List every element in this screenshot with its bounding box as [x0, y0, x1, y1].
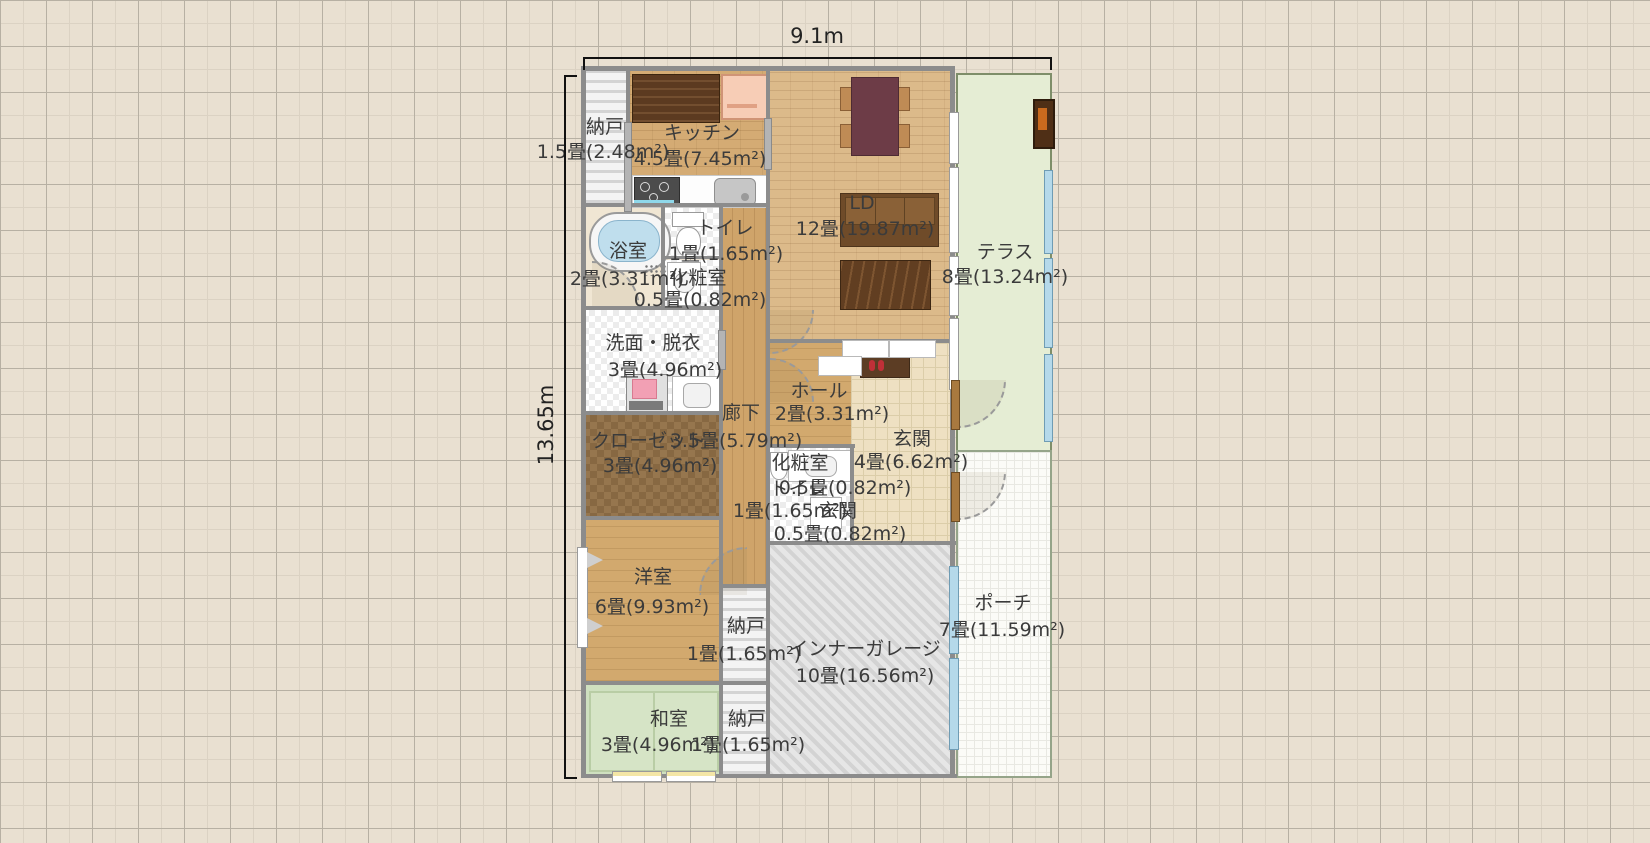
room-label-garage-name: インナーガレージ	[789, 639, 941, 661]
window-ld-terrace[interactable]	[949, 112, 959, 164]
room-label-garage-size: 10畳(16.56m²)	[796, 666, 935, 688]
room-label-washroom-name: 洗面・脱衣	[605, 333, 700, 355]
dimension-tick	[583, 57, 585, 70]
room-label-washroom-size: 3畳(4.96m²)	[608, 360, 722, 382]
dimension-line-width	[583, 57, 1052, 59]
casement-mark-icon	[587, 552, 603, 568]
room-label-terrace-name: テラス	[977, 242, 1034, 264]
washing-machine-lid	[632, 379, 657, 399]
room-label-ld-name: LD	[849, 193, 874, 215]
wall-outer-left	[581, 66, 586, 778]
washing-machine-panel	[629, 401, 663, 410]
room-label-toilet1-name: トイレ	[696, 218, 753, 240]
window-terrace-right[interactable]	[1044, 170, 1053, 254]
shoes-icon	[869, 360, 875, 371]
room-label-corridor-name: 廊下	[722, 403, 760, 425]
room-label-storage4-name: 納戸	[728, 709, 766, 731]
room-label-powder1-name: 化粧室	[669, 268, 726, 290]
dining-table[interactable]	[851, 77, 899, 156]
door-genkan-terrace[interactable]	[951, 380, 960, 430]
wall-washroom-closet	[581, 411, 723, 415]
kitchen-cabinet[interactable]	[632, 74, 720, 123]
tatami-mat	[589, 691, 655, 772]
room-label-toilet2-name: トイレ	[769, 479, 826, 501]
floorplan-canvas: 9.1m 13.65m 納戸 1.5畳(2.48m²) キッチン 4.5畳(7.…	[0, 0, 1650, 843]
refrigerator-handle	[727, 104, 757, 108]
refrigerator[interactable]	[721, 74, 768, 120]
room-label-kitchen-size: 4.5畳(7.45m²)	[634, 149, 766, 171]
sink-drain	[741, 193, 749, 201]
terrace-stove[interactable]	[1033, 99, 1055, 149]
room-label-toilet1-size: 1畳(1.65m²)	[669, 244, 783, 266]
room-label-hall-name: ホール	[790, 381, 847, 403]
door-storage1[interactable]	[624, 122, 632, 212]
window-terrace-right[interactable]	[1044, 354, 1053, 442]
room-label-genkan2-size: 0.5畳(0.82m²)	[774, 524, 906, 546]
burner	[640, 182, 650, 192]
wall-kitchen-bottom	[581, 203, 770, 207]
wall-center-spine	[766, 70, 770, 778]
dimension-height-label: 13.65m	[534, 385, 558, 466]
room-label-storage3-size: 1畳(1.65m²)	[687, 644, 801, 666]
window-japanese-bottom[interactable]	[612, 771, 662, 782]
room-label-storage3-name: 納戸	[727, 616, 765, 638]
entrance-step	[889, 340, 936, 358]
washstand-basin	[683, 383, 711, 408]
room-label-western-size: 6畳(9.93m²)	[595, 597, 709, 619]
terrace-stove-fire	[1038, 108, 1047, 130]
room-label-genkan-size: 4畳(6.62m²)	[854, 452, 968, 474]
burner	[659, 182, 669, 192]
room-label-genkan-name: 玄関	[893, 429, 931, 451]
dimension-line-height	[564, 75, 566, 779]
room-label-porch-size: 7畳(11.59m²)	[939, 620, 1065, 642]
dimension-width-label: 9.1m	[790, 24, 844, 48]
window-garage-porch[interactable]	[949, 658, 959, 750]
room-label-powder1-size: 0.5畳(0.82m²)	[634, 290, 766, 312]
room-label-japanese-name: 和室	[650, 709, 688, 731]
tatami-mat	[653, 691, 719, 772]
room-label-bath-size: 2畳(3.31m²)	[570, 269, 684, 291]
entrance-step	[818, 356, 862, 376]
room-label-storage4-size: 1畳(1.65m²)	[691, 735, 805, 757]
window-japanese-bottom[interactable]	[666, 771, 716, 782]
wall-closet-western	[581, 516, 723, 520]
room-label-storage1-name: 納戸	[586, 117, 624, 139]
room-label-powder2-name: 化粧室	[771, 453, 828, 475]
room-label-hall-size: 2畳(3.31m²)	[775, 404, 889, 426]
room-label-genkan2-name: 玄関	[819, 501, 857, 523]
coffee-table[interactable]	[840, 260, 931, 310]
dimension-tick	[564, 777, 577, 779]
dimension-tick	[1050, 57, 1052, 70]
window-ld-terrace[interactable]	[949, 167, 959, 253]
wall-japanese-top	[581, 681, 770, 685]
room-label-kitchen-name: キッチン	[664, 123, 740, 145]
kitchen-sink[interactable]	[714, 178, 756, 206]
room-label-closet-name: クローゼット	[591, 431, 705, 453]
room-label-ld-size: 12畳(19.87m²)	[796, 219, 935, 241]
dimension-tick	[564, 75, 577, 77]
wall-storage3-top	[719, 584, 770, 588]
room-label-closet-size: 3畳(4.96m²)	[603, 456, 717, 478]
room-label-porch-name: ポーチ	[974, 593, 1031, 615]
shoes-icon	[878, 360, 884, 371]
door-genkan-porch[interactable]	[951, 472, 960, 522]
room-label-bath-name: 浴室	[609, 241, 647, 263]
room-label-terrace-size: 8畳(13.24m²)	[942, 267, 1068, 289]
room-label-western-name: 洋室	[634, 567, 672, 589]
casement-mark-icon	[587, 618, 603, 634]
